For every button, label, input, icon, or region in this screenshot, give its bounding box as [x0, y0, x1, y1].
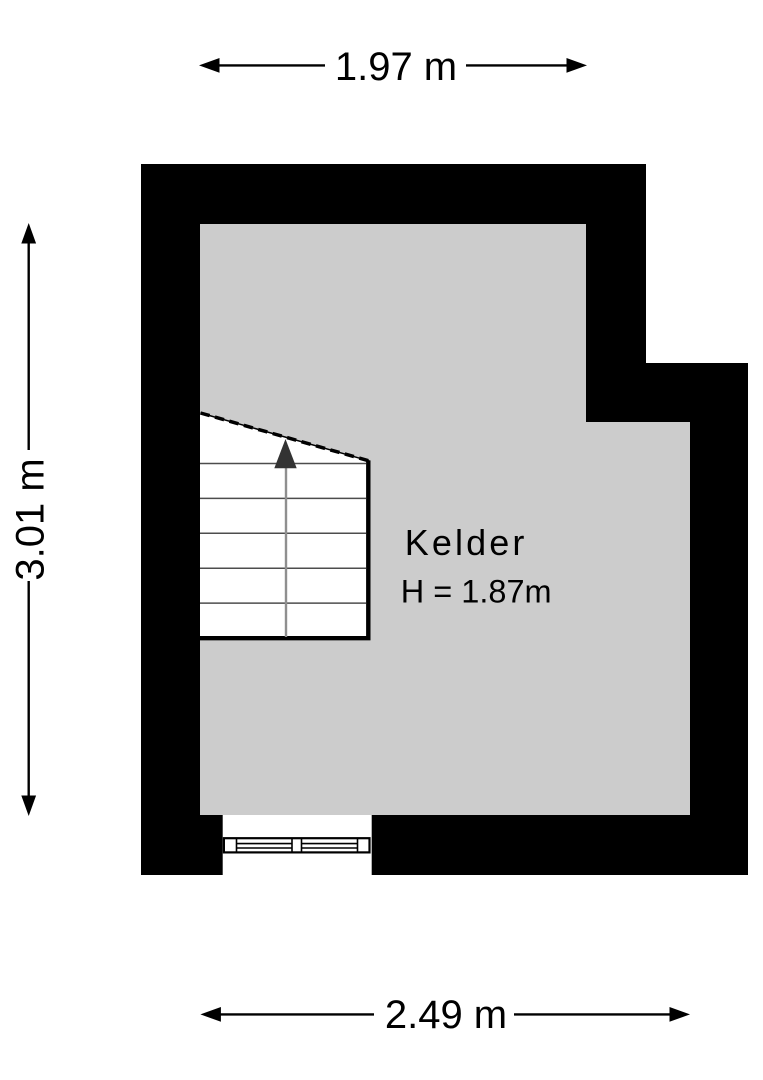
- svg-text:Kelder: Kelder: [405, 522, 528, 563]
- svg-text:3.01 m: 3.01 m: [8, 458, 52, 580]
- svg-text:1.97 m: 1.97 m: [335, 45, 457, 89]
- svg-text:2.49 m: 2.49 m: [385, 993, 507, 1037]
- svg-text:H = 1.87m: H = 1.87m: [401, 574, 552, 610]
